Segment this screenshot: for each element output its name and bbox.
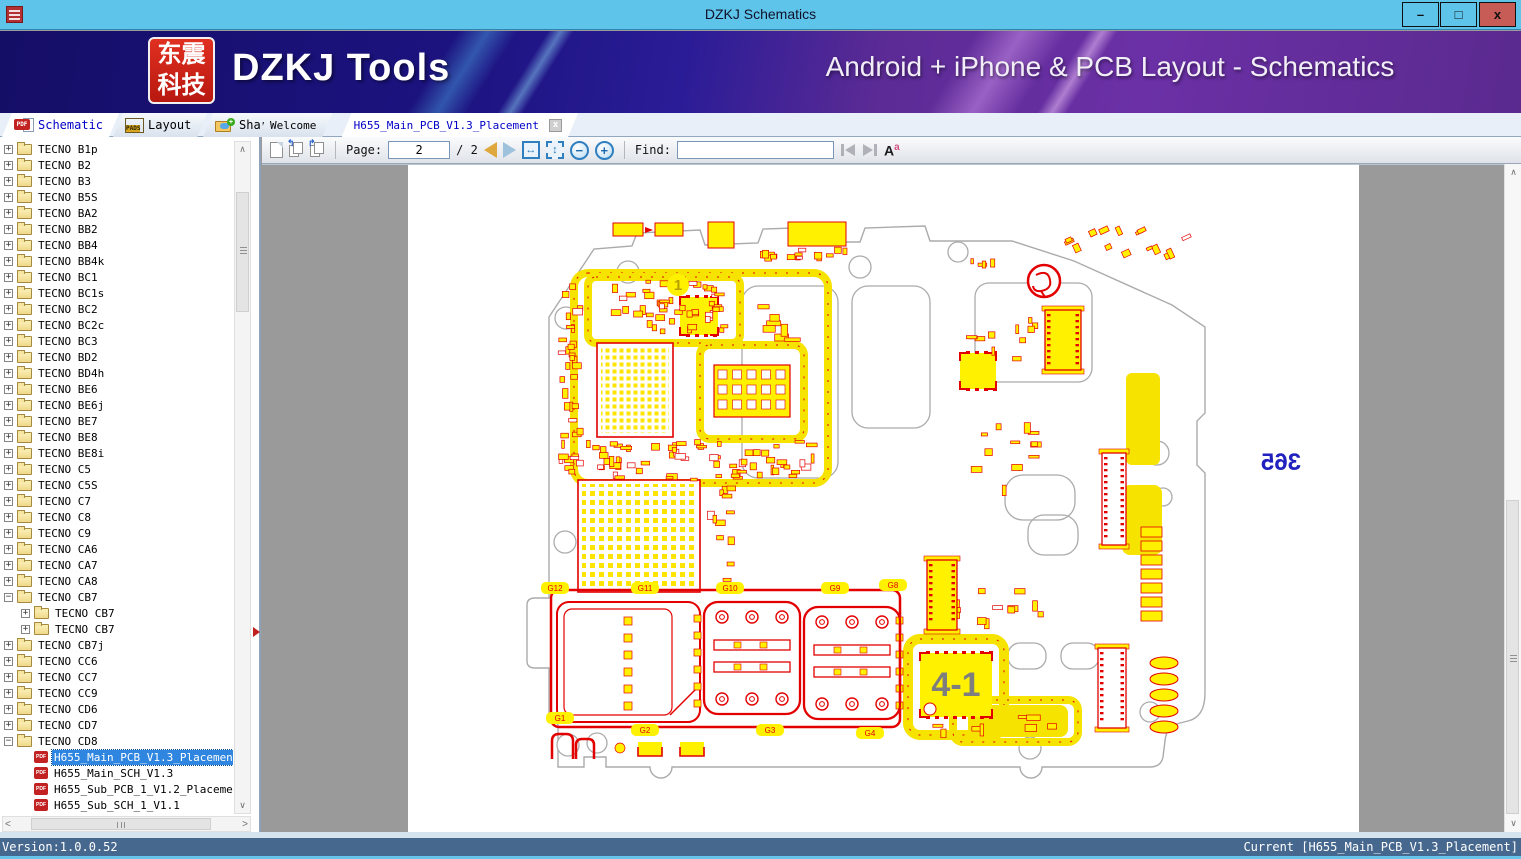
tree-item-folder[interactable]: +TECNO C7 xyxy=(0,493,233,509)
pcb-placement-drawing: 4-11365G12G11G10G9G8G1G2G3G4 xyxy=(408,165,1359,832)
tree-item-label[interactable]: TECNO CA8 xyxy=(36,574,100,589)
tree-item-label[interactable]: H655_Sub_SCH_1_V1.1 xyxy=(52,798,182,813)
expand-icon[interactable]: + xyxy=(4,577,13,586)
tree-item-label[interactable]: TECNO C5 xyxy=(36,462,93,477)
expand-icon[interactable]: + xyxy=(4,641,13,650)
tree-item-folder[interactable]: +TECNO C8 xyxy=(0,509,233,525)
tab-schematic[interactable]: PDFSchematic xyxy=(2,113,119,137)
folder-icon xyxy=(17,192,32,203)
tree-item-label[interactable]: TECNO C7 xyxy=(36,494,93,509)
folder-icon xyxy=(17,432,32,443)
tree-item-label[interactable]: TECNO CA7 xyxy=(36,558,100,573)
tree-item-folder[interactable]: +TECNO B1p xyxy=(0,141,233,157)
logo-text-top: 东震 xyxy=(150,39,213,70)
scroll-up-arrow[interactable]: ∧ xyxy=(235,142,250,157)
tree-item-folder[interactable]: +TECNO CB7j xyxy=(0,637,233,653)
maximize-button[interactable]: □ xyxy=(1440,2,1477,27)
folder-icon xyxy=(17,400,32,411)
tree-item-label[interactable]: TECNO B3 xyxy=(36,174,93,189)
tab-layout[interactable]: PADSLayout xyxy=(113,113,207,137)
folder-icon xyxy=(17,288,32,299)
expand-icon[interactable]: + xyxy=(4,529,13,538)
tree-item-label[interactable]: TECNO CC7 xyxy=(36,670,100,685)
folder-icon xyxy=(17,688,32,699)
scroll-down-arrow[interactable]: ∨ xyxy=(235,798,250,813)
tree-item-label[interactable]: TECNO BC2 xyxy=(36,302,100,317)
application-window: DZKJ Schematics – □ x 东震 科技 DZKJ Tools A… xyxy=(0,0,1521,859)
tree-hscrollbar-thumb[interactable] xyxy=(31,818,211,830)
tree-item-folder[interactable]: +TECNO B2 xyxy=(0,157,233,173)
document-canvas[interactable]: 4-11365G12G11G10G9G8G1G2G3G4 xyxy=(262,164,1504,832)
folder-icon xyxy=(17,224,32,235)
share-icon: + xyxy=(215,118,235,132)
expand-icon[interactable]: + xyxy=(4,225,13,234)
fit-width-button[interactable]: ↔ xyxy=(522,141,540,159)
expand-icon[interactable]: + xyxy=(4,465,13,474)
current-document-text: Current [H655_Main_PCB_V1.3_Placement] xyxy=(1243,840,1518,854)
folder-icon xyxy=(17,592,32,603)
tab-label: Welcome xyxy=(270,119,316,132)
tree-item-folder[interactable]: +TECNO CB7 xyxy=(0,621,233,637)
tree-item-label[interactable]: H655_Main_PCB_V1.3_Placement xyxy=(52,750,233,765)
page-label: Page: xyxy=(346,143,382,157)
tree-item-folder[interactable]: +TECNO BE7 xyxy=(0,413,233,429)
tree-item-label[interactable]: TECNO C9 xyxy=(36,526,93,541)
find-input[interactable] xyxy=(677,141,834,159)
folder-icon xyxy=(17,240,32,251)
tree-item-folder[interactable]: +TECNO BC1 xyxy=(0,269,233,285)
tree-item-label[interactable]: TECNO BC1s xyxy=(36,286,106,301)
expand-icon[interactable]: + xyxy=(4,177,13,186)
expand-icon[interactable]: + xyxy=(4,193,13,202)
folder-icon xyxy=(17,336,32,347)
tree-item-pdf[interactable]: +PDFH655_Main_SCH_V1.3 xyxy=(0,765,233,781)
folder-icon xyxy=(17,736,32,747)
tree-item-label[interactable]: TECNO CB7j xyxy=(36,638,106,653)
expand-icon[interactable]: + xyxy=(4,305,13,314)
logo-text-bottom: 科技 xyxy=(150,70,213,101)
svg-text:G8: G8 xyxy=(888,581,899,590)
folder-icon xyxy=(17,176,32,187)
pdf-file-icon: PDF xyxy=(34,751,48,763)
tree-item-folder[interactable]: +TECNO B3 xyxy=(0,173,233,189)
tree-item-folder[interactable]: +TECNO BD2 xyxy=(0,349,233,365)
tree-item-label[interactable]: H655_Main_SCH_V1.3 xyxy=(52,766,175,781)
tree-horizontal-scrollbar[interactable]: < > xyxy=(2,816,251,832)
expand-icon[interactable]: + xyxy=(21,609,30,618)
tree-scrollbar-thumb[interactable] xyxy=(236,192,249,312)
collapse-icon[interactable]: − xyxy=(4,593,13,602)
folder-icon xyxy=(17,368,32,379)
title-bar: DZKJ Schematics – □ x xyxy=(0,0,1521,30)
expand-icon[interactable]: + xyxy=(4,337,13,346)
canvas-scrollbar-thumb[interactable] xyxy=(1506,500,1519,814)
expand-icon[interactable]: + xyxy=(4,657,13,666)
folder-icon xyxy=(34,608,49,619)
tree-item-folder[interactable]: +TECNO BE6j xyxy=(0,397,233,413)
tree-item-folder[interactable]: +TECNO BB4k xyxy=(0,253,233,269)
folder-icon xyxy=(17,496,32,507)
tree-item-label[interactable]: TECNO BD4h xyxy=(36,366,106,381)
tree-item-label[interactable]: TECNO CB7 xyxy=(36,590,100,605)
pdf-file-icon: PDF xyxy=(34,783,48,795)
tree-item-pdf[interactable]: +PDFH655_Sub_SCH_1_V1.1 xyxy=(0,797,233,813)
svg-text:G12: G12 xyxy=(547,584,563,593)
folder-icon xyxy=(17,576,32,587)
tree-item-folder[interactable]: +TECNO CC6 xyxy=(0,653,233,669)
company-logo: 东震 科技 xyxy=(148,37,215,104)
folder-icon xyxy=(17,304,32,315)
tree-item-folder[interactable]: +TECNO BB2 xyxy=(0,221,233,237)
tree-item-label[interactable]: TECNO BE8i xyxy=(36,446,106,461)
folder-icon xyxy=(17,448,32,459)
svg-text:G4: G4 xyxy=(865,729,876,738)
folder-icon xyxy=(17,512,32,523)
tree-item-folder[interactable]: +TECNO BE6 xyxy=(0,381,233,397)
tree-item-folder[interactable]: +TECNO CC7 xyxy=(0,669,233,685)
folder-icon xyxy=(17,384,32,395)
rotate-left-button[interactable]: ↰ xyxy=(289,142,304,158)
tree-item-label[interactable]: TECNO CC6 xyxy=(36,654,100,669)
expand-icon[interactable]: + xyxy=(4,321,13,330)
tree-item-label[interactable]: TECNO CD7 xyxy=(36,718,100,733)
scroll-up-arrow[interactable]: ∧ xyxy=(1506,165,1521,180)
expand-icon[interactable]: + xyxy=(4,289,13,298)
pdf-file-icon: PDF xyxy=(34,767,48,779)
font-size-button[interactable]: Aa xyxy=(884,142,900,159)
tree-item-folder[interactable]: +TECNO BC3 xyxy=(0,333,233,349)
tree-item-folder[interactable]: +TECNO BE8i xyxy=(0,445,233,461)
pdf-page: 4-11365G12G11G10G9G8G1G2G3G4 xyxy=(408,165,1359,832)
tree-item-folder[interactable]: +TECNO C5S xyxy=(0,477,233,493)
svg-text:1: 1 xyxy=(674,277,682,294)
tab-bar: PDFSchematicPADSLayout+ShareWelcomeH655_… xyxy=(0,113,1521,137)
expand-icon[interactable]: + xyxy=(4,401,13,410)
tree-item-label[interactable]: TECNO CD6 xyxy=(36,702,100,717)
minimize-button[interactable]: – xyxy=(1402,2,1439,27)
folder-icon xyxy=(17,272,32,283)
tree-item-folder[interactable]: +TECNO CD7 xyxy=(0,717,233,733)
expand-icon[interactable]: + xyxy=(4,705,13,714)
close-tab-icon[interactable]: x xyxy=(549,119,562,132)
tree-item-folder[interactable]: +TECNO CD6 xyxy=(0,701,233,717)
pdf-toolbar: ↰ ↱ Page: / 2 ↔ ↕ − + Find: Aa xyxy=(262,137,1521,164)
expand-icon[interactable]: + xyxy=(4,433,13,442)
expand-icon[interactable]: + xyxy=(4,209,13,218)
page-total: / 2 xyxy=(456,143,478,157)
expand-icon[interactable]: + xyxy=(4,145,13,154)
expand-icon[interactable]: + xyxy=(4,545,13,554)
fit-page-button[interactable]: ↕ xyxy=(546,141,564,159)
tree-item-label[interactable]: TECNO BD2 xyxy=(36,350,100,365)
folder-icon xyxy=(17,256,32,267)
folder-icon xyxy=(17,640,32,651)
page-number-input[interactable] xyxy=(388,141,450,159)
tree-item-folder[interactable]: +TECNO CA6 xyxy=(0,541,233,557)
tree-item-folder[interactable]: +TECNO CB7 xyxy=(0,605,233,621)
expand-icon[interactable]: + xyxy=(4,497,13,506)
tree-item-label[interactable]: TECNO CB7 xyxy=(53,606,117,621)
tree-item-label[interactable]: TECNO CA6 xyxy=(36,542,100,557)
expand-icon[interactable]: + xyxy=(21,625,30,634)
tree-item-folder[interactable]: +TECNO BB4 xyxy=(0,237,233,253)
tree-item-pdf[interactable]: +PDFH655_Main_PCB_V1.3_Placement xyxy=(0,749,233,765)
tab-label: Schematic xyxy=(38,118,103,132)
svg-text:G10: G10 xyxy=(722,584,738,593)
find-label: Find: xyxy=(635,143,671,157)
find-previous-icon[interactable] xyxy=(840,143,856,157)
tree-item-folder[interactable]: +TECNO BC2 xyxy=(0,301,233,317)
folder-icon xyxy=(17,704,32,715)
tree-item-label[interactable]: TECNO B1p xyxy=(36,142,100,157)
header-banner: 东震 科技 DZKJ Tools Android + iPhone & PCB … xyxy=(0,31,1521,113)
rotate-right-button[interactable]: ↱ xyxy=(310,142,325,158)
canvas-vertical-scrollbar[interactable]: ∧ ∨ xyxy=(1504,164,1521,832)
folder-icon xyxy=(17,352,32,363)
tree-item-label[interactable]: TECNO BE7 xyxy=(36,414,100,429)
svg-text:G1: G1 xyxy=(555,714,566,723)
scroll-down-arrow[interactable]: ∨ xyxy=(1506,816,1521,831)
tree-item-label[interactable]: TECNO BB2 xyxy=(36,222,100,237)
tree-item-folder[interactable]: +TECNO CC9 xyxy=(0,685,233,701)
svg-text:G2: G2 xyxy=(640,726,651,735)
expand-icon[interactable]: + xyxy=(4,273,13,282)
folder-icon xyxy=(17,464,32,475)
tree-item-label[interactable]: TECNO BE6 xyxy=(36,382,100,397)
tree-item-folder[interactable]: +TECNO BC1s xyxy=(0,285,233,301)
collapse-icon[interactable]: − xyxy=(4,737,13,746)
app-name: DZKJ Tools xyxy=(232,47,450,90)
expand-icon[interactable]: + xyxy=(4,721,13,730)
tree-item-label[interactable]: TECNO BA2 xyxy=(36,206,100,221)
splitter-collapse-arrow[interactable] xyxy=(253,627,260,637)
tree-item-pdf[interactable]: +PDFH655_Sub_PCB_1_V1.2_Placement xyxy=(0,781,233,797)
folder-icon xyxy=(17,720,32,731)
tree-item-label[interactable]: TECNO CC9 xyxy=(36,686,100,701)
expand-icon[interactable]: + xyxy=(4,513,13,522)
folder-icon xyxy=(17,560,32,571)
window-title: DZKJ Schematics xyxy=(0,6,1521,22)
mirrored-page-number: 365 xyxy=(1261,449,1301,476)
zoom-out-button[interactable]: − xyxy=(570,141,589,160)
status-bar: Version:1.0.0.52 Current [H655_Main_PCB_… xyxy=(0,838,1521,856)
tree-item-folder[interactable]: +TECNO BE8 xyxy=(0,429,233,445)
expand-icon[interactable]: + xyxy=(4,417,13,426)
tree-item-label[interactable]: TECNO BC2c xyxy=(36,318,106,333)
tree-item-folder[interactable]: +TECNO C5 xyxy=(0,461,233,477)
toolbar-separator xyxy=(624,141,625,159)
expand-icon[interactable]: + xyxy=(4,353,13,362)
zoom-in-button[interactable]: + xyxy=(595,141,614,160)
tree-item-folder[interactable]: +TECNO BA2 xyxy=(0,205,233,221)
expand-icon[interactable]: + xyxy=(4,161,13,170)
file-tree: +TECNO B1p+TECNO B2+TECNO B3+TECNO B5S+T… xyxy=(0,141,233,814)
tree-item-folder[interactable]: +TECNO BD4h xyxy=(0,365,233,381)
expand-icon[interactable]: + xyxy=(4,561,13,570)
tree-item-label[interactable]: TECNO CD8 xyxy=(36,734,100,749)
pdf-file-icon: PDF xyxy=(34,799,48,811)
tree-item-label[interactable]: TECNO B5S xyxy=(36,190,100,205)
scroll-left-arrow[interactable]: < xyxy=(5,817,11,832)
tree-item-label[interactable]: TECNO BC1 xyxy=(36,270,100,285)
svg-text:G3: G3 xyxy=(765,726,776,735)
folder-icon xyxy=(17,144,32,155)
expand-icon[interactable]: + xyxy=(4,481,13,490)
tree-item-label[interactable]: TECNO C5S xyxy=(36,478,100,493)
banner-tagline: Android + iPhone & PCB Layout - Schemati… xyxy=(770,51,1450,83)
close-button[interactable]: x xyxy=(1479,2,1516,27)
tab-label: H655_Main_PCB_V1.3_Placement xyxy=(354,119,539,132)
svg-text:G9: G9 xyxy=(830,584,841,593)
tree-item-folder[interactable]: +TECNO CA8 xyxy=(0,573,233,589)
folder-icon xyxy=(17,160,32,171)
tree-item-label[interactable]: TECNO B2 xyxy=(36,158,93,173)
document-tab-welcome[interactable]: Welcome xyxy=(258,113,332,137)
expand-icon[interactable]: + xyxy=(4,689,13,698)
tree-vertical-scrollbar[interactable]: ∧ ∨ xyxy=(234,141,251,814)
tree-item-label[interactable]: TECNO CB7 xyxy=(53,622,117,637)
folder-icon xyxy=(17,208,32,219)
expand-icon[interactable]: + xyxy=(4,673,13,682)
tree-item-folder[interactable]: −TECNO CB7 xyxy=(0,589,233,605)
tree-item-label[interactable]: TECNO BE8 xyxy=(36,430,100,445)
previous-page-button[interactable] xyxy=(484,142,497,158)
tree-item-folder[interactable]: +TECNO BC2c xyxy=(0,317,233,333)
pads-icon: PADS xyxy=(125,118,144,133)
find-next-icon[interactable] xyxy=(862,143,878,157)
folder-icon xyxy=(17,672,32,683)
tree-item-folder[interactable]: −TECNO CD8 xyxy=(0,733,233,749)
scroll-right-arrow[interactable]: > xyxy=(242,817,248,832)
tree-item-label[interactable]: TECNO C8 xyxy=(36,510,93,525)
document-tab-h655_main_pcb_v1.3_placement[interactable]: H655_Main_PCB_V1.3_Placementx xyxy=(342,113,578,137)
folder-icon xyxy=(17,320,32,331)
svg-text:4-1: 4-1 xyxy=(931,666,980,704)
folder-icon xyxy=(17,544,32,555)
tree-item-label[interactable]: TECNO BE6j xyxy=(36,398,106,413)
tree-item-label[interactable]: H655_Sub_PCB_1_V1.2_Placement xyxy=(52,782,233,797)
svg-text:G11: G11 xyxy=(638,584,653,593)
toolbar-separator xyxy=(335,141,336,159)
file-tree-panel: +TECNO B1p+TECNO B2+TECNO B3+TECNO B5S+T… xyxy=(0,137,261,832)
single-page-view-button[interactable] xyxy=(270,142,283,158)
folder-icon xyxy=(17,656,32,667)
next-page-button[interactable] xyxy=(503,142,516,158)
folder-icon xyxy=(17,416,32,427)
tree-item-folder[interactable]: +TECNO C9 xyxy=(0,525,233,541)
expand-icon[interactable]: + xyxy=(4,449,13,458)
expand-icon[interactable]: + xyxy=(4,369,13,378)
folder-icon xyxy=(34,624,49,635)
tree-item-folder[interactable]: +TECNO B5S xyxy=(0,189,233,205)
folder-icon xyxy=(17,528,32,539)
tree-item-folder[interactable]: +TECNO CA7 xyxy=(0,557,233,573)
expand-icon[interactable]: + xyxy=(4,257,13,266)
tab-label: Layout xyxy=(148,118,191,132)
tree-item-label[interactable]: TECNO BB4k xyxy=(36,254,106,269)
folder-icon xyxy=(17,480,32,491)
tree-item-label[interactable]: TECNO BB4 xyxy=(36,238,100,253)
version-text: Version:1.0.0.52 xyxy=(2,840,118,854)
tree-item-label[interactable]: TECNO BC3 xyxy=(36,334,100,349)
expand-icon[interactable]: + xyxy=(4,385,13,394)
pdf-icon: PDF xyxy=(14,118,34,132)
expand-icon[interactable]: + xyxy=(4,241,13,250)
